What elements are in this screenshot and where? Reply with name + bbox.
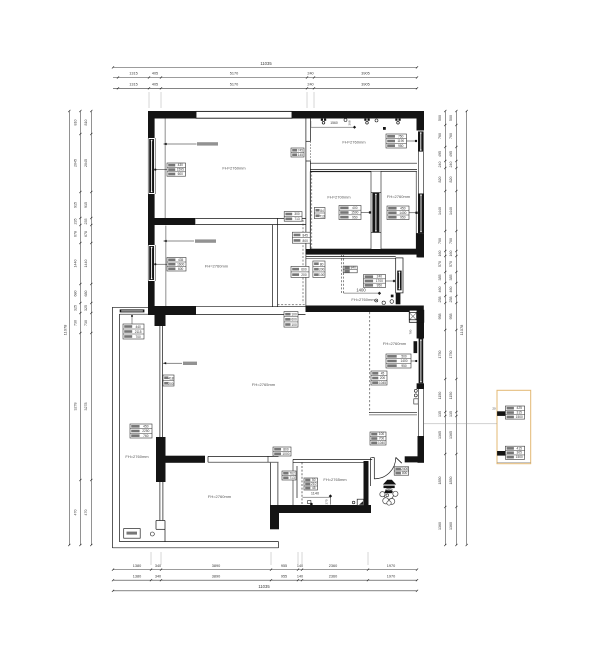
svg-text:1000: 1000 [282, 452, 289, 456]
svg-text:340: 340 [155, 574, 161, 578]
svg-text:1500: 1500 [351, 211, 358, 215]
svg-text:430: 430 [178, 163, 184, 167]
svg-text:950: 950 [401, 364, 407, 368]
svg-text:955: 955 [281, 564, 287, 568]
svg-text:950: 950 [377, 283, 383, 287]
svg-text:200: 200 [319, 268, 325, 272]
svg-text:570: 570 [449, 261, 453, 267]
svg-text:3905: 3905 [361, 72, 369, 76]
svg-text:1500: 1500 [516, 415, 523, 419]
svg-text:20: 20 [492, 407, 496, 411]
svg-text:500: 500 [401, 354, 407, 358]
svg-text:2045: 2045 [73, 159, 77, 167]
svg-text:FH=2765mm: FH=2765mm [252, 382, 276, 387]
svg-text:11035: 11035 [258, 584, 270, 589]
svg-text:140: 140 [297, 574, 303, 578]
svg-text:1360: 1360 [438, 522, 442, 530]
svg-text:1750: 1750 [438, 351, 442, 359]
svg-text:460: 460 [438, 287, 442, 293]
svg-text:1150: 1150 [438, 392, 442, 400]
svg-text:FH=2760mm: FH=2760mm [351, 297, 375, 302]
svg-text:495: 495 [438, 151, 442, 157]
svg-text:915: 915 [84, 202, 88, 208]
svg-text:1150: 1150 [449, 392, 453, 400]
svg-text:1440: 1440 [73, 260, 77, 268]
svg-text:840: 840 [351, 265, 357, 269]
svg-text:258: 258 [438, 297, 442, 303]
svg-text:3278: 3278 [73, 403, 77, 411]
svg-text:745: 745 [298, 148, 304, 152]
svg-text:2115: 2115 [135, 330, 142, 334]
svg-text:80: 80 [320, 262, 324, 266]
svg-text:495: 495 [449, 151, 453, 157]
svg-text:780: 780 [409, 329, 413, 334]
svg-text:135: 135 [438, 411, 442, 417]
svg-text:3890: 3890 [212, 574, 220, 578]
svg-text:2360: 2360 [329, 574, 337, 578]
svg-text:500: 500 [449, 115, 453, 121]
svg-text:2250: 2250 [142, 429, 149, 433]
svg-text:958: 958 [449, 314, 453, 320]
svg-text:300: 300 [294, 212, 300, 216]
svg-text:1440: 1440 [84, 260, 88, 268]
svg-text:1850: 1850 [449, 477, 453, 485]
svg-text:730: 730 [73, 320, 77, 326]
svg-text:240: 240 [307, 82, 313, 86]
svg-text:FH=2760mm: FH=2760mm [342, 140, 366, 145]
svg-text:1380: 1380 [133, 574, 141, 578]
svg-text:1850: 1850 [438, 477, 442, 485]
svg-text:FH=2760mm: FH=2760mm [205, 264, 229, 269]
svg-text:800: 800 [303, 239, 309, 243]
svg-text:1440: 1440 [449, 207, 453, 215]
svg-text:258: 258 [449, 297, 453, 303]
svg-text:500: 500 [438, 115, 442, 121]
svg-text:385: 385 [449, 275, 453, 281]
svg-text:678: 678 [73, 231, 77, 237]
svg-text:1365: 1365 [449, 431, 453, 439]
svg-text:450: 450 [400, 206, 406, 210]
svg-text:2045: 2045 [84, 159, 88, 167]
svg-text:3905: 3905 [361, 82, 369, 86]
svg-text:470: 470 [73, 510, 77, 516]
svg-text:240: 240 [449, 162, 453, 168]
svg-text:600: 600 [178, 267, 184, 271]
svg-text:955: 955 [281, 574, 287, 578]
svg-text:1400: 1400 [400, 359, 407, 363]
svg-text:400: 400 [352, 206, 358, 210]
svg-text:235: 235 [73, 219, 77, 225]
svg-text:713: 713 [294, 217, 300, 221]
svg-text:100: 100 [319, 273, 325, 277]
svg-text:145: 145 [298, 153, 304, 157]
svg-text:600: 600 [291, 318, 297, 322]
svg-text:100: 100 [291, 323, 297, 327]
svg-text:FH=2760mm: FH=2760mm [208, 494, 232, 499]
svg-text:440: 440 [135, 325, 141, 329]
svg-text:1400: 1400 [399, 211, 406, 215]
svg-text:600: 600 [301, 268, 307, 272]
svg-text:1190: 1190 [397, 139, 404, 143]
svg-text:678: 678 [84, 231, 88, 237]
svg-text:1045: 1045 [379, 381, 386, 385]
svg-text:600: 600 [178, 172, 184, 176]
svg-text:200: 200 [380, 376, 386, 380]
svg-text:845: 845 [303, 234, 309, 238]
svg-text:1500: 1500 [516, 455, 523, 459]
svg-text:762: 762 [289, 471, 295, 475]
svg-text:800: 800 [402, 471, 408, 475]
svg-text:200: 200 [168, 382, 174, 386]
svg-text:680: 680 [73, 291, 77, 297]
svg-text:1365: 1365 [438, 431, 442, 439]
svg-text:700: 700 [135, 335, 141, 339]
svg-text:435: 435 [178, 258, 184, 262]
svg-text:325: 325 [73, 305, 77, 311]
svg-text:1560: 1560 [330, 121, 338, 125]
svg-text:FH=2760mm: FH=2760mm [222, 166, 246, 171]
svg-text:2360: 2360 [329, 564, 337, 568]
svg-text:140: 140 [297, 564, 303, 568]
svg-text:160: 160 [449, 251, 453, 257]
svg-text:750: 750 [398, 134, 404, 138]
svg-text:FH=2760mm: FH=2760mm [387, 194, 411, 199]
svg-text:760: 760 [449, 133, 453, 139]
svg-text:1595: 1595 [177, 168, 184, 172]
svg-text:470: 470 [84, 510, 88, 516]
svg-text:45: 45 [312, 486, 316, 490]
svg-text:84: 84 [320, 209, 324, 213]
svg-text:1600: 1600 [177, 262, 184, 266]
svg-text:1140: 1140 [311, 491, 319, 495]
svg-text:760: 760 [143, 434, 149, 438]
svg-text:240: 240 [438, 162, 442, 168]
svg-text:235: 235 [84, 219, 88, 225]
svg-text:700: 700 [438, 238, 442, 244]
svg-text:325: 325 [84, 305, 88, 311]
svg-text:1380: 1380 [133, 564, 141, 568]
svg-text:1970: 1970 [387, 564, 395, 568]
svg-text:915: 915 [73, 202, 77, 208]
svg-text:405: 405 [152, 82, 158, 86]
svg-text:1360: 1360 [449, 522, 453, 530]
svg-text:FH=2765mm: FH=2765mm [323, 477, 347, 482]
svg-text:1970: 1970 [387, 574, 395, 578]
svg-text:820: 820 [449, 177, 453, 183]
svg-text:160: 160 [438, 251, 442, 257]
svg-text:950: 950 [352, 215, 358, 219]
svg-text:FH=2700mm: FH=2700mm [327, 195, 351, 200]
svg-text:820: 820 [438, 177, 442, 183]
svg-text:368: 368 [348, 120, 352, 125]
svg-text:45: 45 [381, 371, 385, 375]
svg-text:11035: 11035 [260, 61, 272, 66]
svg-text:240: 240 [307, 72, 313, 76]
svg-text:FH=2760mm: FH=2760mm [125, 454, 149, 459]
svg-text:11078: 11078 [63, 324, 68, 336]
svg-text:135: 135 [449, 411, 453, 417]
svg-text:418: 418 [168, 376, 174, 380]
svg-text:5170: 5170 [230, 72, 238, 76]
svg-text:730: 730 [84, 320, 88, 326]
svg-text:3278: 3278 [84, 403, 88, 411]
svg-text:570: 570 [438, 261, 442, 267]
svg-text:1315: 1315 [129, 82, 137, 86]
svg-text:370: 370 [324, 499, 328, 504]
svg-text:200: 200 [301, 273, 307, 277]
svg-text:800: 800 [283, 447, 289, 451]
svg-text:958: 958 [438, 314, 442, 320]
svg-text:680: 680 [84, 291, 88, 297]
svg-text:405: 405 [152, 72, 158, 76]
svg-text:713: 713 [319, 214, 325, 218]
svg-text:1440: 1440 [438, 207, 442, 215]
svg-text:340: 340 [155, 564, 161, 568]
svg-text:100: 100 [291, 313, 297, 317]
svg-text:950: 950 [398, 144, 404, 148]
svg-text:810: 810 [84, 120, 88, 126]
svg-text:713: 713 [289, 476, 295, 480]
svg-text:450: 450 [143, 424, 149, 428]
svg-text:760: 760 [438, 133, 442, 139]
svg-text:FH=2760mm: FH=2760mm [383, 341, 407, 346]
svg-text:1750: 1750 [449, 351, 453, 359]
svg-text:1040: 1040 [378, 441, 385, 445]
svg-text:950: 950 [400, 215, 406, 219]
svg-text:460: 460 [449, 287, 453, 293]
svg-text:5170: 5170 [230, 82, 238, 86]
svg-text:11078: 11078 [459, 324, 464, 336]
svg-text:1315: 1315 [129, 72, 137, 76]
svg-text:700: 700 [449, 238, 453, 244]
svg-text:385: 385 [438, 275, 442, 281]
svg-text:3890: 3890 [212, 564, 220, 568]
svg-text:1400: 1400 [356, 288, 366, 293]
svg-text:810: 810 [73, 120, 77, 126]
